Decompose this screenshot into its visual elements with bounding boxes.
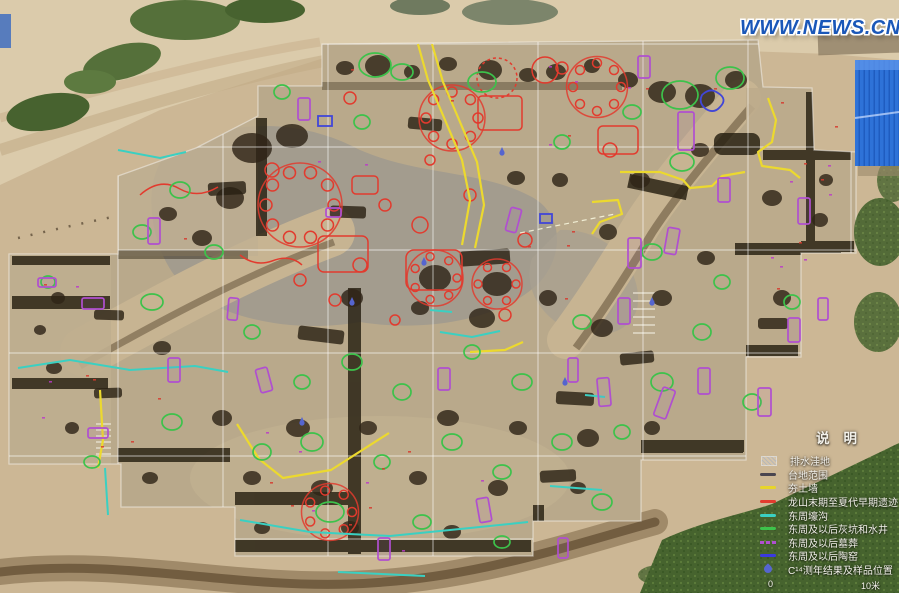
legend-item-drainage: 排水洼地 [760, 454, 899, 468]
scale-bar: 0 10米 [768, 579, 880, 593]
legend-item-trench: 东周壕沟 [760, 508, 899, 522]
legend-item-longshan: 龙山末期至夏代早期遗迹 [760, 495, 899, 509]
drainage-swatch [761, 456, 777, 466]
wall-swatch [760, 486, 776, 489]
kiln-swatch [760, 554, 776, 557]
legend-item-ashpit: 东周及以后灰坑和水井 [760, 522, 899, 536]
map-legend: 说明 排水洼地 台地范围 夯土墙 龙山末期至夏代早期遗迹 东周壕沟 东周及以后灰… [750, 427, 899, 593]
scale-end: 10米 [861, 579, 880, 592]
legend-item-wall: 夯土墙 [760, 481, 899, 495]
legend-item-tomb: 东周及以后墓葬 [760, 536, 899, 550]
blue-roof-shed [855, 60, 899, 176]
legend-item-c14: C¹⁴测年结果及样品位置 [760, 563, 899, 577]
c14-drop-icon [762, 563, 773, 574]
scale-start: 0 [768, 579, 773, 592]
legend-item-kiln: 东周及以后陶窑 [760, 549, 899, 563]
legend-label: C¹⁴测年结果及样品位置 [788, 562, 893, 577]
longshan-swatch [760, 500, 776, 503]
legend-title: 说明 [816, 427, 899, 447]
aerial-site-photo: WWW.NEWS.CN 说明 排水洼地 台地范围 夯土墙 龙山末期至夏代早期遗迹… [0, 0, 899, 593]
news-watermark: WWW.NEWS.CN [740, 17, 899, 40]
tomb-swatch [760, 541, 776, 544]
platform-swatch [760, 473, 776, 476]
trench-swatch [760, 514, 776, 517]
legend-item-platform: 台地范围 [760, 468, 899, 482]
ashpit-swatch [760, 527, 776, 530]
